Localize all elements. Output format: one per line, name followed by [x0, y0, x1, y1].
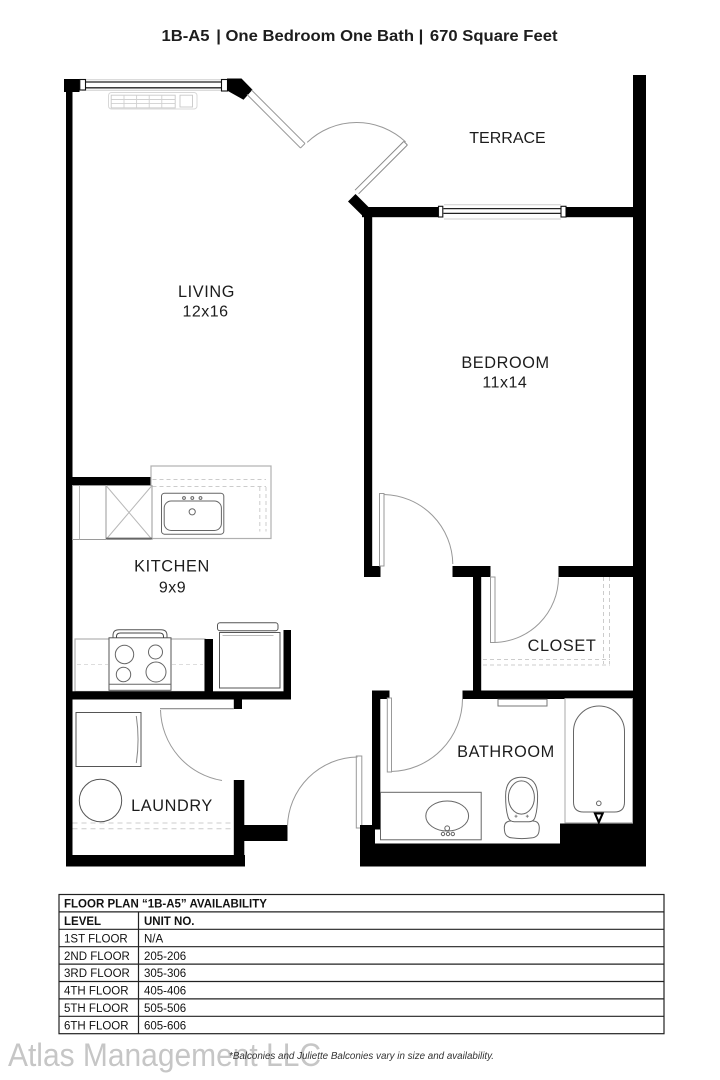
- svg-text:205-206: 205-206: [144, 951, 186, 963]
- svg-text:BATHROOM: BATHROOM: [457, 743, 555, 761]
- svg-text:505-506: 505-506: [144, 1003, 186, 1015]
- svg-text:405-406: 405-406: [144, 986, 186, 998]
- svg-text:4TH FLOOR: 4TH FLOOR: [64, 986, 129, 998]
- svg-text:305-306: 305-306: [144, 968, 186, 980]
- svg-text:CLOSET: CLOSET: [528, 637, 597, 655]
- svg-text:KITCHEN: KITCHEN: [134, 558, 210, 576]
- svg-text:1B-A5 | One Bedroom One Bath: 1B-A5 | One Bedroom One Bath | 670 Squar…: [162, 28, 559, 45]
- svg-text:605-606: 605-606: [144, 1020, 186, 1032]
- svg-text:BEDROOM: BEDROOM: [461, 354, 549, 372]
- svg-text:1ST FLOOR: 1ST FLOOR: [64, 933, 128, 945]
- svg-text:5TH FLOOR: 5TH FLOOR: [64, 1003, 129, 1015]
- svg-text:LEVEL: LEVEL: [64, 916, 101, 928]
- svg-text:2ND FLOOR: 2ND FLOOR: [64, 951, 130, 963]
- svg-text:6TH FLOOR: 6TH FLOOR: [64, 1020, 129, 1032]
- svg-text:*Balconies and Juliette Balcon: *Balconies and Juliette Balconies vary i…: [229, 1051, 494, 1062]
- svg-text:11x14: 11x14: [482, 375, 527, 392]
- svg-text:TERRACE: TERRACE: [469, 130, 545, 147]
- svg-text:UNIT NO.: UNIT NO.: [144, 916, 194, 928]
- svg-text:9x9: 9x9: [159, 580, 186, 597]
- svg-text:12x16: 12x16: [182, 304, 228, 321]
- svg-text:3RD FLOOR: 3RD FLOOR: [64, 968, 130, 980]
- svg-text:LAUNDRY: LAUNDRY: [131, 797, 213, 815]
- svg-text:LIVING: LIVING: [178, 283, 235, 301]
- svg-text:N/A: N/A: [144, 933, 164, 945]
- svg-text:FLOOR PLAN “1B-A5” AVAILABILIT: FLOOR PLAN “1B-A5” AVAILABILITY: [64, 899, 267, 911]
